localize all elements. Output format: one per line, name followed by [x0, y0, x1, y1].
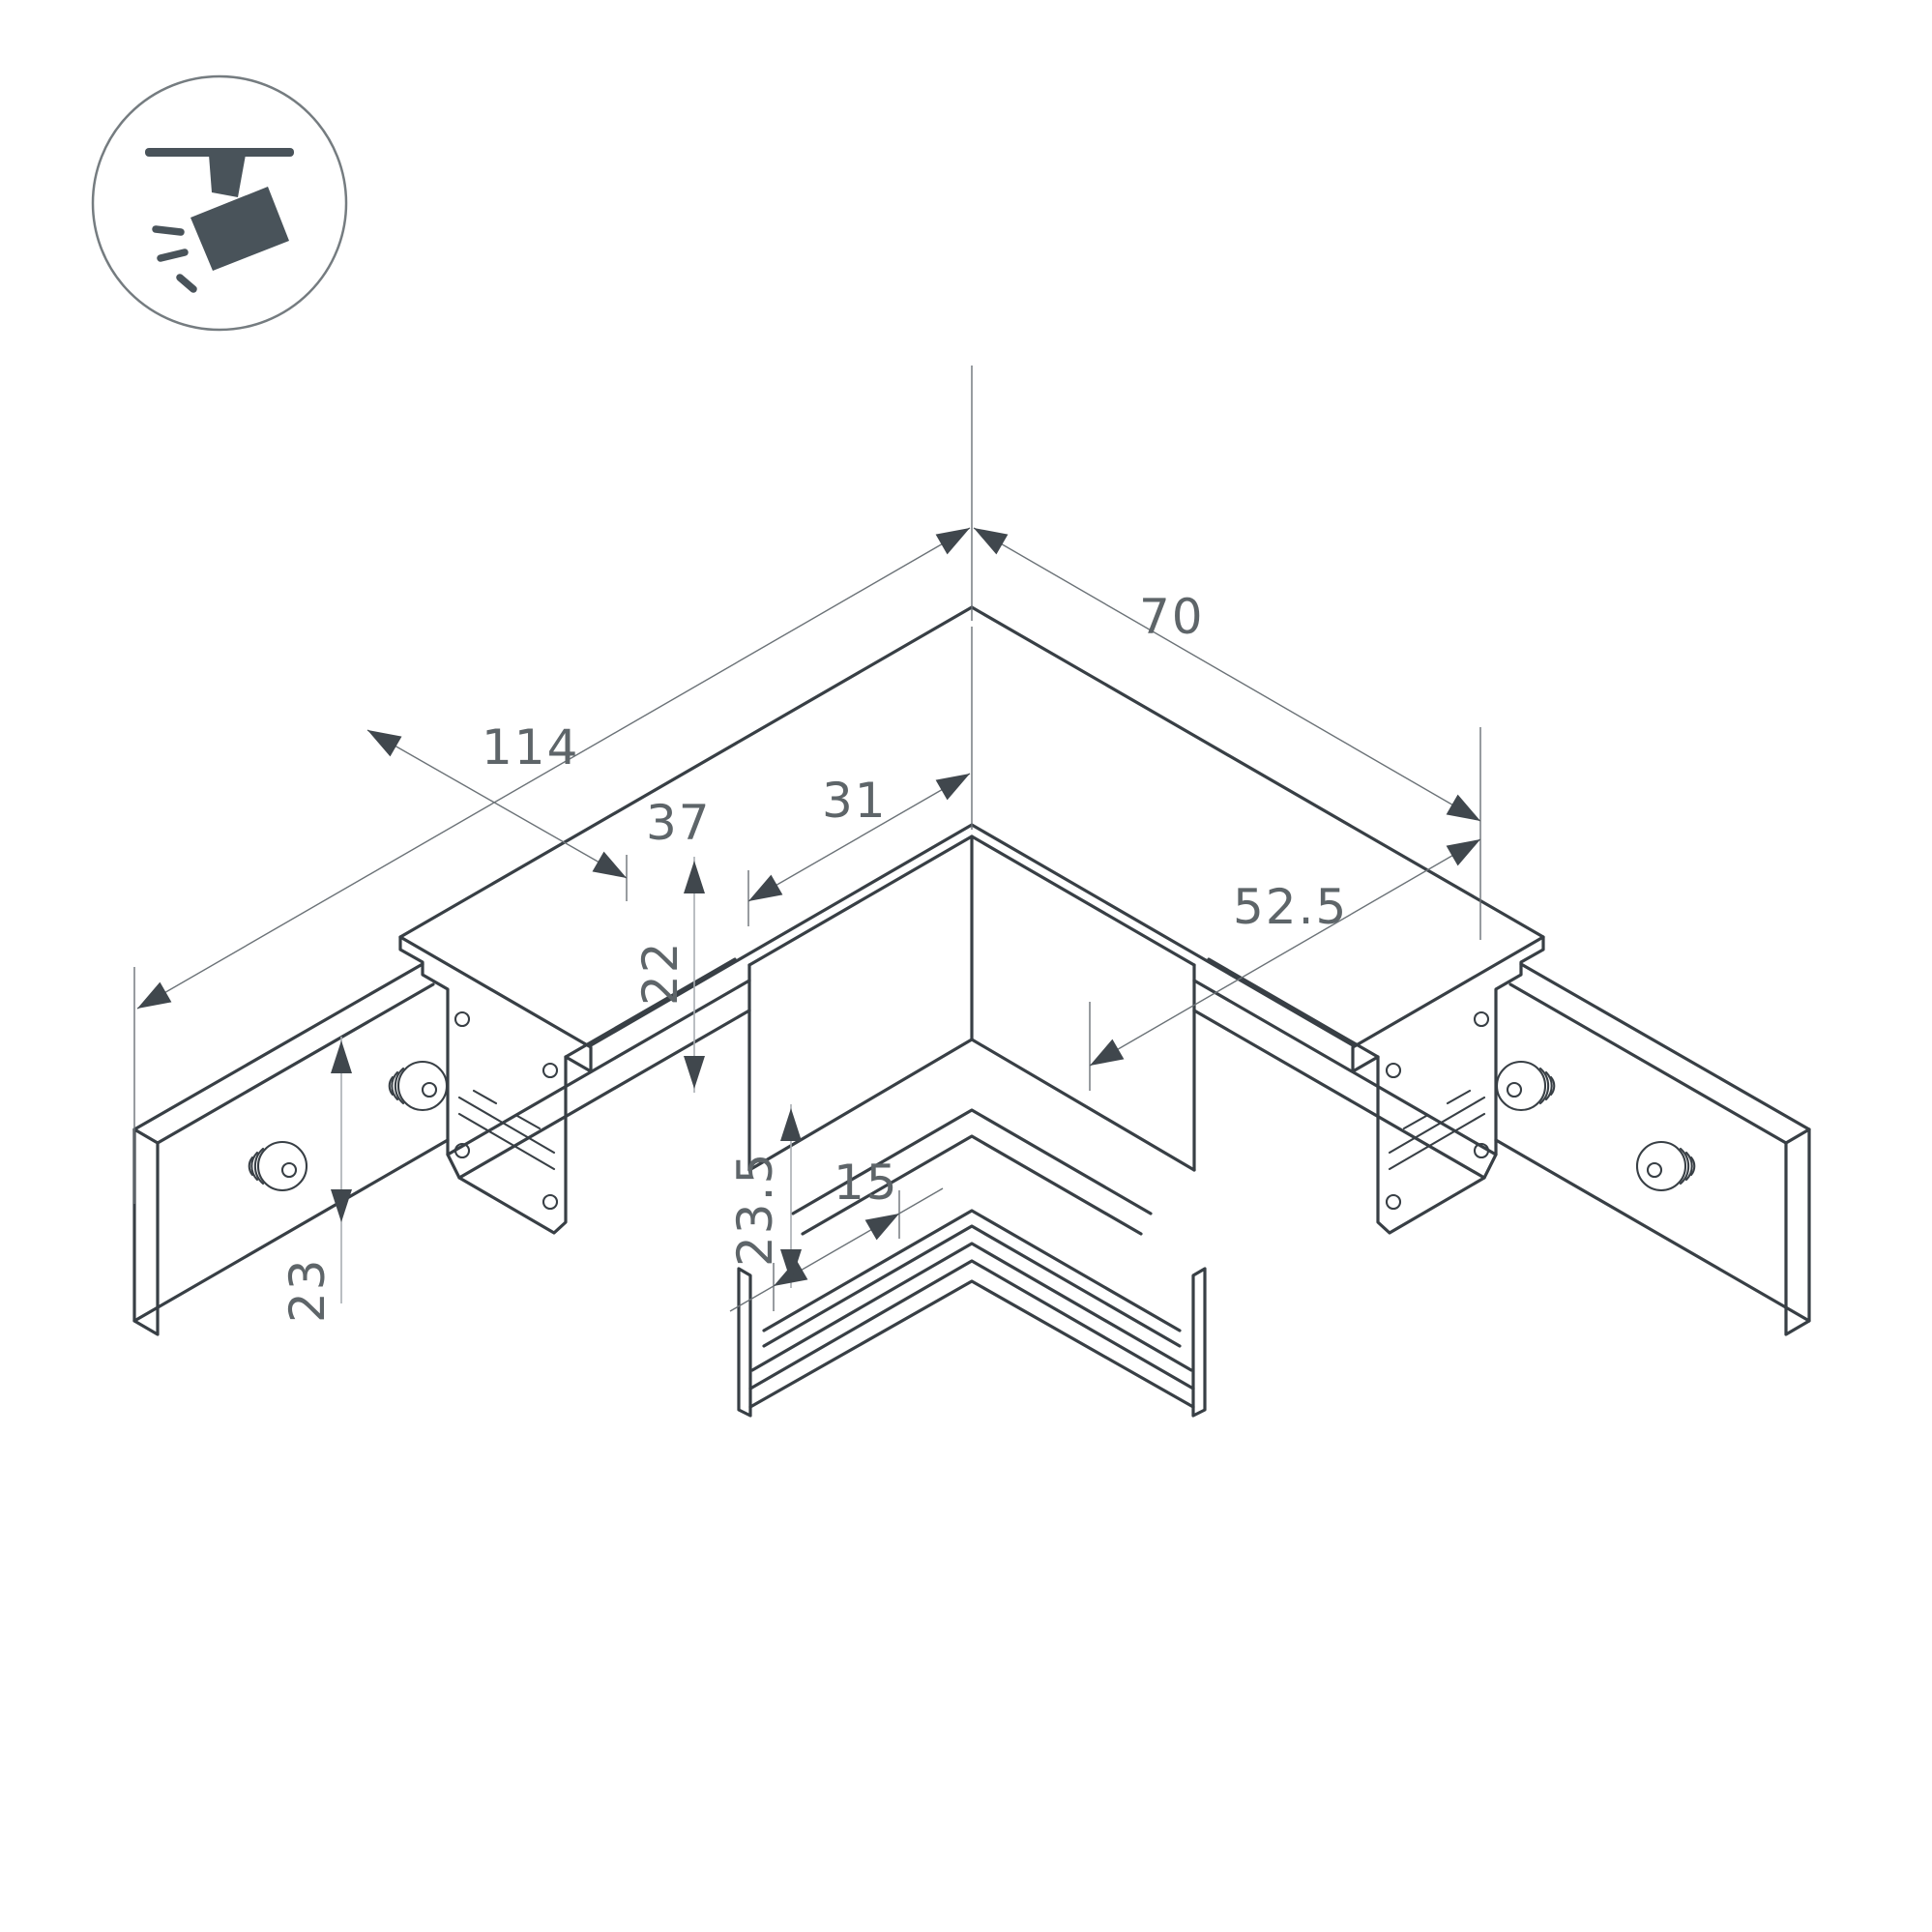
corner-connector-drawing: 114 70 37 31 52.5 15 22 23.5 23	[0, 0, 1932, 1932]
technical-drawing-page: 114 70 37 31 52.5 15 22 23.5 23	[0, 0, 1932, 1932]
screw	[249, 1142, 307, 1190]
screw	[1497, 1062, 1554, 1110]
dim-label-52.5: 52.5	[1233, 879, 1348, 935]
inner-corner-box	[749, 836, 1194, 1170]
trough-chevrons	[750, 1211, 1193, 1407]
right-fin	[1193, 1269, 1205, 1416]
dim-label-15: 15	[834, 1155, 899, 1211]
left-fin	[739, 1269, 750, 1416]
track-light-icon	[93, 76, 346, 330]
dim-label-114: 114	[482, 719, 579, 776]
left-cut-face	[400, 937, 591, 1233]
dim-label-31: 31	[822, 773, 888, 829]
screw	[390, 1062, 447, 1110]
left-cut-face-detail	[455, 1012, 557, 1209]
dim-line-70	[974, 528, 1480, 821]
dim-label-37: 37	[646, 795, 712, 851]
right-mounting-plate	[1496, 964, 1809, 1334]
dim-label-70: 70	[1139, 589, 1205, 645]
dim-label-23.5: 23.5	[727, 1152, 783, 1267]
screw	[1637, 1142, 1694, 1190]
right-cut-face	[1353, 937, 1543, 1233]
dim-label-22: 22	[632, 940, 688, 1006]
dim-label-23: 23	[279, 1257, 336, 1323]
icon-circle	[93, 76, 346, 330]
extension-lines	[134, 366, 1480, 1311]
right-cut-face-detail	[1387, 1012, 1488, 1209]
